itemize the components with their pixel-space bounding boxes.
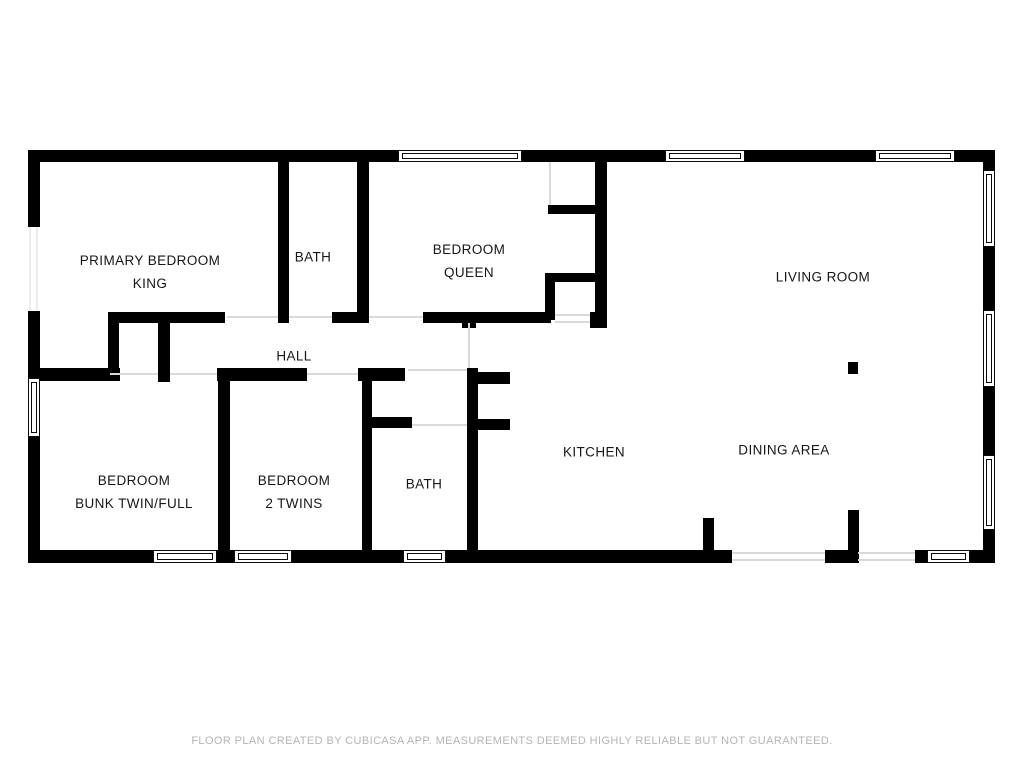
wall-segment: [595, 162, 607, 320]
room-label-primary-bedroom: PRIMARY BEDROOMKING: [80, 249, 221, 295]
window-marker: [665, 150, 745, 162]
wall-segment: [446, 550, 732, 563]
wall-segment: [28, 550, 153, 563]
wall-segment: [983, 530, 995, 563]
wall-segment: [218, 368, 230, 563]
window-marker: [403, 550, 446, 563]
room-label-bedroom-2-twins: BEDROOM2 TWINS: [258, 469, 331, 515]
door-opening-line: [408, 369, 467, 371]
door-opening-line: [858, 552, 915, 554]
wall-segment: [915, 550, 927, 563]
room-label-line: QUEEN: [433, 261, 506, 284]
window-pane: [931, 553, 966, 560]
wall-segment: [545, 273, 555, 320]
window-pane: [157, 553, 213, 560]
wall-segment: [423, 312, 551, 323]
door-opening-line: [412, 424, 467, 426]
footer-disclaimer: FLOOR PLAN CREATED BY CUBICASA APP. MEAS…: [0, 735, 1024, 747]
wall-segment: [467, 419, 510, 430]
door-opening-line: [555, 314, 590, 316]
room-label-line: KING: [80, 272, 221, 295]
window-marker: [875, 150, 955, 162]
wall-segment: [467, 372, 510, 384]
wall-segment: [467, 368, 478, 563]
wall-segment: [548, 205, 595, 214]
room-label-line: LIVING ROOM: [776, 266, 870, 289]
wall-segment: [848, 362, 858, 374]
room-label-bedroom-bunk: BEDROOMBUNK TWIN/FULL: [75, 469, 193, 515]
wall-segment: [983, 150, 995, 170]
window-marker: [983, 455, 995, 530]
room-label-kitchen: KITCHEN: [563, 441, 625, 464]
wall-segment: [28, 150, 40, 227]
window-pane: [238, 553, 288, 560]
window-pane: [986, 314, 992, 383]
window-marker: [983, 170, 995, 247]
wall-segment: [292, 550, 403, 563]
window-pane: [669, 153, 741, 159]
door-opening-line: [369, 316, 423, 318]
room-label-line: BEDROOM: [75, 469, 193, 492]
room-label-line: HALL: [276, 345, 311, 368]
room-label-hall: HALL: [276, 345, 311, 368]
door-opening-line: [468, 323, 470, 368]
door-opening-line: [549, 162, 551, 205]
room-label-line: PRIMARY BEDROOM: [80, 249, 221, 272]
wall-segment: [848, 510, 859, 563]
door-opening-line: [289, 316, 332, 318]
wall-segment: [28, 437, 40, 563]
wall-segment: [217, 368, 307, 381]
wall-segment: [362, 417, 412, 428]
door-opening-line: [227, 316, 278, 318]
window-marker: [398, 150, 522, 162]
wall-segment: [357, 162, 369, 323]
wall-segment: [983, 247, 995, 310]
room-label-line: BEDROOM: [433, 238, 506, 261]
room-label-line: KITCHEN: [563, 441, 625, 464]
wall-segment: [983, 387, 995, 455]
wall-segment: [362, 368, 372, 563]
room-label-line: 2 TWINS: [258, 492, 331, 515]
door-opening-line: [36, 227, 38, 311]
window-marker: [234, 550, 292, 563]
door-opening-line: [732, 559, 825, 561]
door-opening-line: [732, 552, 825, 554]
room-label-line: BEDROOM: [258, 469, 331, 492]
wall-segment: [332, 312, 357, 323]
door-opening-line: [170, 373, 217, 375]
door-opening-line: [858, 559, 915, 561]
door-opening-line: [555, 321, 590, 323]
room-label-dining-area: DINING AREA: [738, 439, 829, 462]
wall-segment: [28, 150, 398, 162]
wall-segment: [158, 312, 170, 382]
wall-segment: [745, 150, 875, 162]
room-label-line: BATH: [406, 473, 443, 496]
room-label-bedroom-queen: BEDROOMQUEEN: [433, 238, 506, 284]
window-pane: [31, 382, 37, 433]
wall-segment: [703, 518, 714, 563]
door-opening-line: [29, 227, 31, 311]
window-marker: [983, 310, 995, 387]
window-pane: [986, 174, 992, 243]
window-marker: [28, 378, 40, 437]
window-pane: [879, 153, 951, 159]
room-label-line: DINING AREA: [738, 439, 829, 462]
room-label-line: BATH: [295, 246, 332, 269]
window-pane: [402, 153, 518, 159]
window-pane: [407, 553, 442, 560]
room-label-living-room: LIVING ROOM: [776, 266, 870, 289]
room-label-bath-top: BATH: [295, 246, 332, 269]
room-label-line: BUNK TWIN/FULL: [75, 492, 193, 515]
window-marker: [927, 550, 970, 563]
wall-segment: [522, 150, 665, 162]
wall-segment: [108, 312, 119, 381]
door-opening-line: [110, 373, 158, 375]
window-marker: [153, 550, 217, 563]
floor-plan: PRIMARY BEDROOMKINGBATHBEDROOMQUEENLIVIN…: [0, 0, 1024, 768]
wall-segment: [278, 162, 289, 323]
window-pane: [986, 459, 992, 526]
room-label-bath-bottom: BATH: [406, 473, 443, 496]
door-opening-line: [307, 373, 358, 375]
wall-segment: [28, 368, 120, 381]
